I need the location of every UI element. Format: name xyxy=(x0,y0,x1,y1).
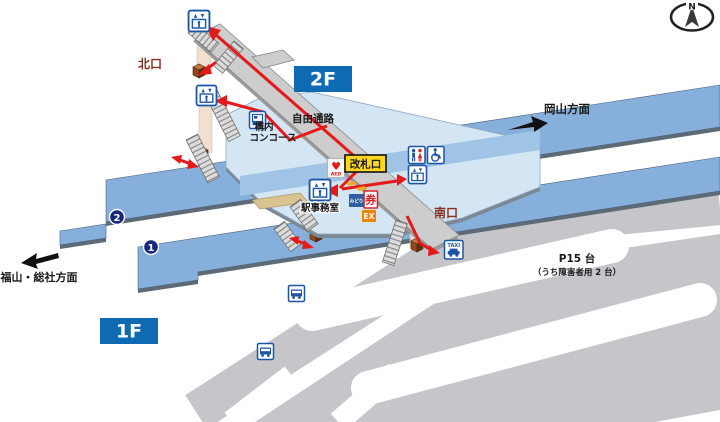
svg-text:AED: AED xyxy=(331,172,342,178)
floor-1f-badge: 1F xyxy=(100,318,158,344)
aed-icon: ♥ AED xyxy=(328,159,345,178)
bus-stop-icon-1 xyxy=(289,286,305,302)
fukuyama-soja-direction-arrow-icon xyxy=(21,253,59,269)
svg-text:みどり: みどり xyxy=(350,198,364,205)
svg-text:TAXI: TAXI xyxy=(447,243,460,249)
svg-text:1: 1 xyxy=(148,243,155,254)
okayama-direction-label: 岡山方面 xyxy=(544,102,590,116)
platform-1-number-badge: 1 xyxy=(144,240,159,255)
compass-north-label: N xyxy=(688,3,696,13)
platform-2-number-badge: 2 xyxy=(110,210,125,225)
south-exit-label: 南口 xyxy=(434,205,458,220)
svg-text:券: 券 xyxy=(364,193,377,207)
toilet-icon xyxy=(409,147,426,164)
station-office-label: 駅事務室 xyxy=(301,202,340,214)
concourse-label-line1: 構内 xyxy=(254,121,273,133)
platform1-elevator-icon xyxy=(310,180,331,201)
south-elevator-icon xyxy=(408,165,426,183)
platform2-elevator-icon xyxy=(197,86,217,106)
station-map-svg: P15 台 （うち障害者用 2 台） 2 1 xyxy=(0,0,720,422)
taxi-stand-icon: TAXI xyxy=(445,241,464,260)
station-map: P15 台 （うち障害者用 2 台） 2 1 xyxy=(0,0,720,422)
svg-text:2: 2 xyxy=(114,213,121,224)
floor-2f-badge: 2F xyxy=(294,66,352,92)
wheelchair-accessible-icon xyxy=(428,147,445,164)
north-exit-label: 北口 xyxy=(138,56,162,71)
free-passage-label: 自由通路 xyxy=(292,112,334,125)
concourse-label-line2: コンコース xyxy=(249,133,296,144)
bus-stop-icon-2 xyxy=(258,344,274,360)
north-elevator-icon xyxy=(189,11,210,32)
compass-icon: N xyxy=(671,1,713,31)
heart-icon: ♥ xyxy=(331,160,341,173)
ticket-gate-label: 改札口 xyxy=(350,158,382,171)
parking-capacity-label: P15 台 xyxy=(559,252,595,265)
svg-text:1F: 1F xyxy=(116,321,142,343)
fukuyama-soja-direction-label: 福山・総社方面 xyxy=(0,270,78,284)
parking-capacity-note: （うち障害者用 2 台） xyxy=(533,267,621,278)
svg-text:EX: EX xyxy=(364,212,375,221)
svg-text:2F: 2F xyxy=(310,69,336,91)
